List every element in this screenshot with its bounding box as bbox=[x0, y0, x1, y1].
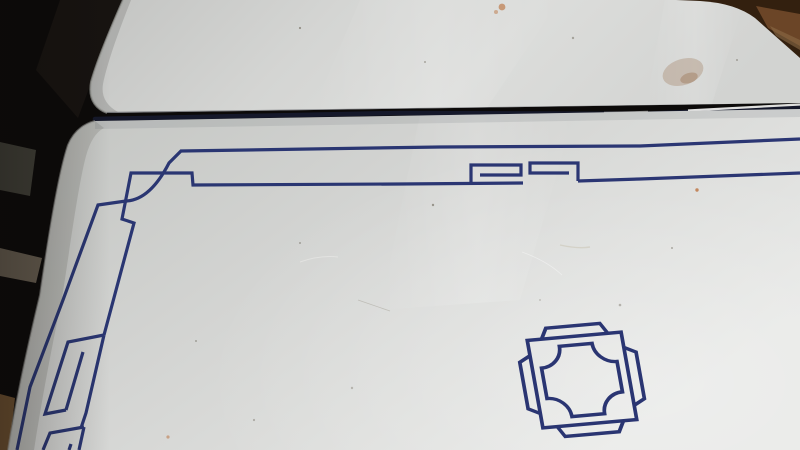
left-vignette bbox=[0, 0, 110, 450]
leaf-rust-spot-2 bbox=[494, 10, 498, 14]
speck bbox=[351, 387, 353, 389]
speck bbox=[195, 340, 197, 342]
leaf-speck bbox=[299, 27, 301, 29]
speck bbox=[539, 299, 541, 301]
table-leaf bbox=[90, 0, 800, 118]
speck bbox=[253, 419, 255, 421]
speck bbox=[671, 247, 673, 249]
rust-dot-2 bbox=[166, 435, 169, 438]
speck bbox=[299, 242, 301, 244]
speck bbox=[619, 304, 622, 307]
photo-enamel-table: White enamel kitchen table top with coba… bbox=[0, 0, 800, 450]
leaf-rust-spot bbox=[499, 4, 506, 11]
leaf-speck bbox=[572, 37, 574, 39]
leaf-speck bbox=[736, 59, 738, 61]
speck bbox=[432, 204, 434, 206]
rust-dot bbox=[695, 188, 698, 191]
leaf-speck bbox=[424, 61, 426, 63]
photo-canvas bbox=[0, 0, 800, 450]
